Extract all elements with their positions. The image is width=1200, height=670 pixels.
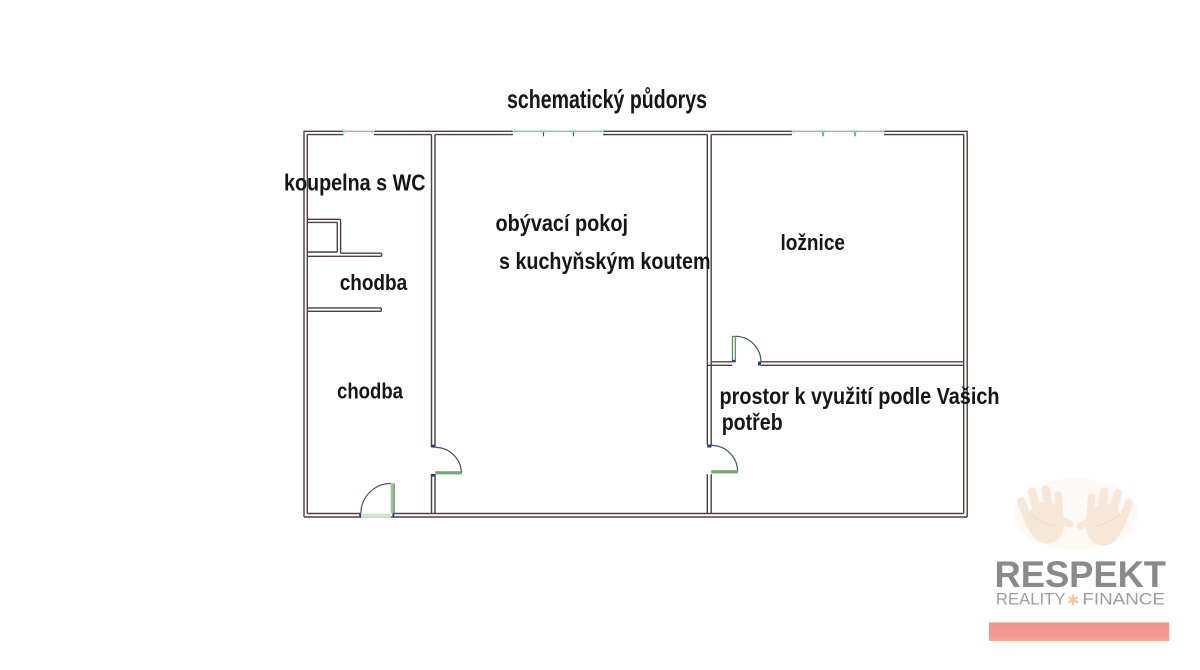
svg-text:chodba: chodba: [337, 378, 404, 403]
svg-text:RESPEKT: RESPEKT: [995, 554, 1167, 595]
svg-text:FINANCE: FINANCE: [1082, 590, 1165, 608]
svg-text:s kuchyňským koutem: s kuchyňským koutem: [499, 248, 711, 274]
svg-text:koupelna s WC: koupelna s WC: [284, 170, 426, 196]
svg-text:obývací pokoj: obývací pokoj: [496, 210, 629, 236]
svg-text:potřeb: potřeb: [722, 409, 783, 435]
svg-text:REALITY: REALITY: [996, 590, 1066, 608]
svg-text:prostor k využití podle Vašich: prostor k využití podle Vašich: [720, 383, 1000, 409]
svg-text:chodba: chodba: [340, 270, 408, 295]
svg-text:ložnice: ložnice: [781, 230, 846, 255]
svg-text:schematický půdorys: schematický půdorys: [507, 84, 707, 114]
